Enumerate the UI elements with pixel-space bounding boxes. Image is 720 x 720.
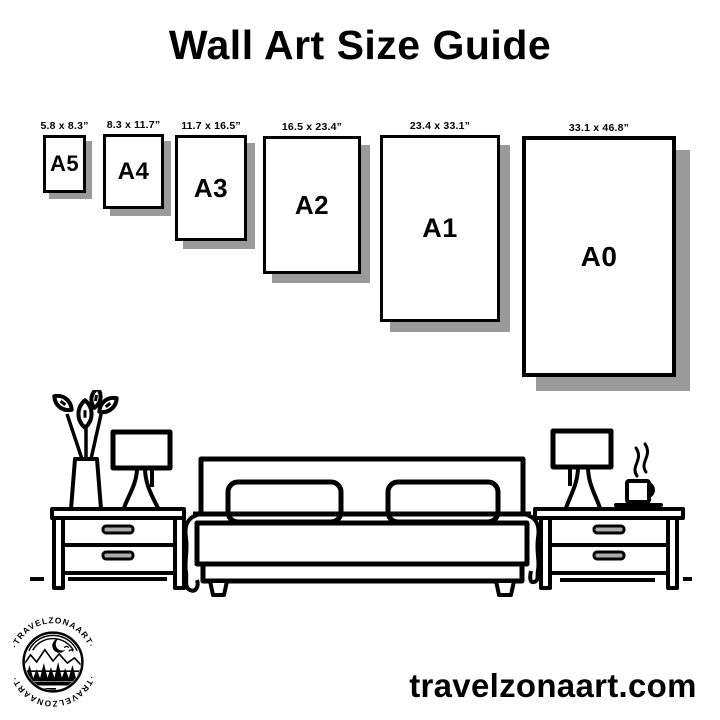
page-title: Wall Art Size Guide bbox=[0, 22, 720, 69]
plant-icon bbox=[51, 390, 120, 509]
size-name-label: A5 bbox=[50, 151, 79, 177]
size-name-label: A4 bbox=[118, 158, 150, 186]
size-name-label: A0 bbox=[581, 241, 618, 273]
size-frame-a5: 5.8 x 8.3”A5 bbox=[43, 135, 86, 193]
size-name-label: A1 bbox=[422, 213, 458, 244]
size-name-label: A3 bbox=[194, 173, 228, 204]
brand-logo-badge: ·TRAVELZONAART· ·TRAVELZONAART· bbox=[5, 614, 101, 710]
size-frame-a4: 8.3 x 11.7”A4 bbox=[103, 134, 164, 209]
size-frame-a3: 11.7 x 16.5”A3 bbox=[175, 135, 247, 241]
size-name-label: A2 bbox=[295, 190, 329, 221]
size-frame-a0: 33.1 x 46.8”A0 bbox=[522, 136, 676, 377]
size-dimensions-label: 33.1 x 46.8” bbox=[486, 122, 712, 134]
size-frame-a2: 16.5 x 23.4”A2 bbox=[263, 136, 361, 274]
steam-icon bbox=[635, 444, 648, 476]
nightstand-icon bbox=[535, 509, 683, 588]
size-frame-a1: 23.4 x 33.1”A1 bbox=[380, 135, 500, 322]
website-url: travelzonaart.com bbox=[402, 667, 704, 705]
water-icon bbox=[19, 682, 86, 689]
nightstand-icon bbox=[52, 509, 184, 588]
wall-art-size-guide-page: Wall Art Size Guide 5.8 x 8.3”A58.3 x 11… bbox=[0, 0, 720, 720]
coffee-cup-icon bbox=[616, 444, 661, 505]
bed-icon bbox=[185, 459, 538, 595]
lamp-icon bbox=[113, 432, 170, 508]
bedroom-illustration bbox=[0, 390, 720, 608]
lamp-icon bbox=[553, 431, 611, 508]
